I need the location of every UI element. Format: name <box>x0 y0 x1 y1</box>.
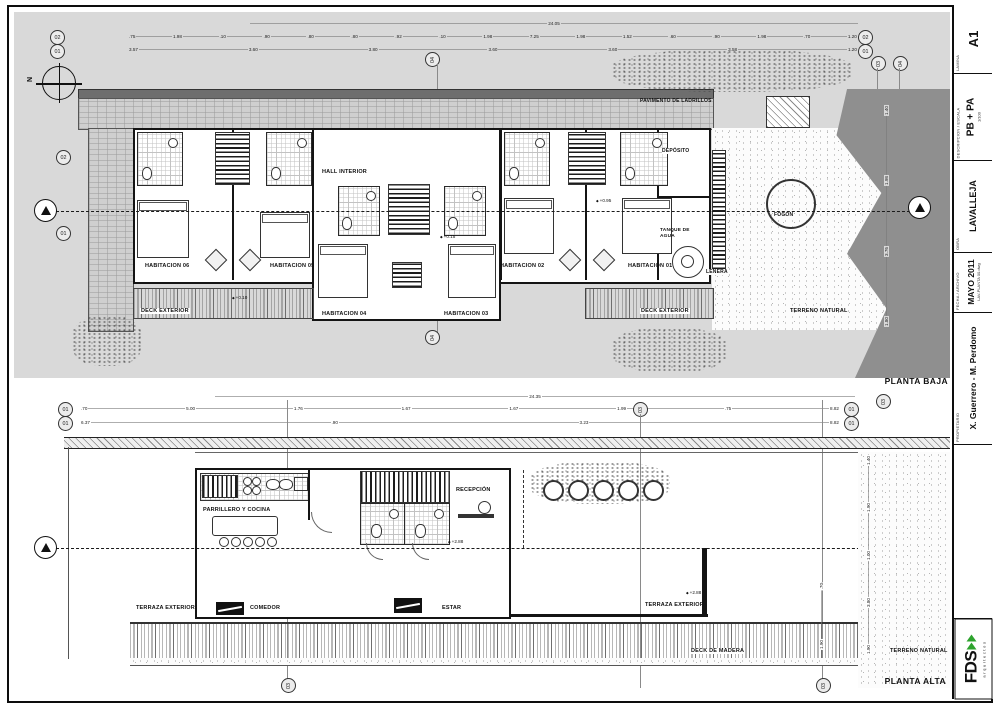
fogon-circle <box>766 179 816 229</box>
sink-icon <box>168 138 178 148</box>
dimension-value: 8.82 <box>829 406 840 411</box>
toilet-icon <box>342 217 352 230</box>
column-circle <box>643 480 664 501</box>
toilet-icon <box>371 524 382 538</box>
escala-value: 1/100 <box>976 112 981 122</box>
propietario-header: PROPIETARIO <box>955 413 960 442</box>
comedor-label: COMEDOR <box>250 605 280 611</box>
dimension-value: 3.60 <box>248 47 259 52</box>
fireplace <box>394 598 422 613</box>
grid-bubble-01-left: 01 <box>50 44 65 59</box>
section-line-lower <box>56 548 930 549</box>
dimension-value: .75 <box>724 406 732 411</box>
dim-row-lower-1: .705.001.761.671.671.99.758.82 <box>80 404 840 412</box>
wardrobe <box>568 132 606 185</box>
burner-icon <box>243 477 252 486</box>
dimension-value: 5.00 <box>185 406 196 411</box>
estar-label: ESTAR <box>442 605 461 611</box>
brick-path-left <box>88 128 134 332</box>
obra-header: OBRA <box>955 238 960 250</box>
grid-bubble-02-leftmid: 02 <box>56 150 71 165</box>
dimension-value: 6.37 <box>80 420 91 425</box>
gravel-band <box>130 658 858 666</box>
dimension-value: .90 <box>262 34 270 39</box>
section-marker <box>34 536 57 559</box>
sink-icon <box>266 479 280 490</box>
north-label: N <box>27 77 34 82</box>
level-marker: +0.15 <box>440 234 455 239</box>
grid-bubble-03-bottom: 03 <box>281 678 296 693</box>
bathroom-pod <box>504 132 550 186</box>
level-marker: +0.10 <box>232 295 247 300</box>
lamina-value: A1 <box>966 31 981 48</box>
sink-icon <box>279 479 293 490</box>
water-tank-inner <box>681 255 694 268</box>
deck-left-label: DECK EXTERIOR <box>140 308 190 314</box>
stool-icon <box>219 537 229 547</box>
dimension-value: 1.80 <box>884 316 889 327</box>
burner-icon <box>252 477 261 486</box>
fds-logo: FDS <box>961 634 981 683</box>
deck-right-label: DECK EXTERIOR <box>640 308 690 314</box>
bathroom-pod <box>620 132 668 186</box>
grid-bubble-01-right2: 01 <box>844 416 859 431</box>
grid-bubble-03-rot: 03 <box>876 394 891 409</box>
bed <box>260 212 310 258</box>
water-tank <box>672 246 704 278</box>
logo-triangle-icon <box>966 642 976 649</box>
dimension-value: .80 <box>350 34 358 39</box>
grid-bubble-01-leftmid: 01 <box>56 226 71 241</box>
bathroom-pod <box>404 503 450 545</box>
dimension-value: 3.76 <box>884 246 889 257</box>
north-arrow-icon <box>42 66 76 100</box>
vegetation <box>612 328 727 372</box>
title-block-propietario: PROPIETARIO X. Guerrero - M. Perdomo <box>954 312 992 445</box>
title-block-descripcion: DESCRIPCION / ESCALA PB + PA 1/100 <box>954 73 992 161</box>
terrace-dashed-edge <box>523 470 525 548</box>
site-boundary <box>68 447 69 659</box>
wood-deck <box>130 622 858 661</box>
dimension-total: 24.35 <box>528 394 542 399</box>
room-label-h05: HABITACION 05 <box>270 263 314 269</box>
dimension-value: 3.80 <box>866 597 871 608</box>
bed <box>622 198 672 254</box>
dimension-value: 3.23 <box>579 420 590 425</box>
sink-icon <box>366 191 376 201</box>
toilet-icon <box>415 524 426 538</box>
drawing-sheet: 24.05 .751.98.10.90.80.80.92.101.987.251… <box>0 0 1000 707</box>
toilet-icon <box>509 167 519 180</box>
dim-total-upper: 24.05 <box>250 19 858 27</box>
bed <box>137 200 189 258</box>
title-block-logo: FDS arquitectos <box>954 618 992 699</box>
vdim-col-mid: .701.90 <box>816 582 827 650</box>
terraza-left-label: TERRAZA EXTERIOR <box>136 605 195 611</box>
dimension-value: 1.76 <box>293 406 304 411</box>
sink-icon <box>535 138 545 148</box>
toilet-icon <box>142 167 152 180</box>
dimension-value: .10 <box>219 34 227 39</box>
logo-triangle-icon <box>966 634 976 641</box>
stool-icon <box>243 537 253 547</box>
section-line-upper <box>56 211 930 212</box>
parrillero-label: PARRILLERO Y COCINA <box>203 507 270 513</box>
grid-bubble-04-righttop: 04 <box>893 56 908 71</box>
sink-icon <box>652 138 662 148</box>
pavimento-label: PAVIMENTO DE LADRILLOS <box>640 98 712 104</box>
room-label-h04: HABITACION 04 <box>322 311 366 317</box>
descripcion-value: PB + PA <box>965 97 976 135</box>
stair-flight <box>392 262 422 288</box>
stair-run <box>360 471 450 503</box>
level-marker: +0.95 <box>596 198 611 203</box>
title-block-fecha: FECHA / ARCHIVO MAYO 2011 LAV-PLANTA 00.… <box>954 252 992 313</box>
title-block-lamina: LAMINA A1 <box>954 5 992 74</box>
stool-icon <box>255 537 265 547</box>
planta-alta-title: PLANTA ALTA <box>828 676 946 686</box>
section-marker <box>34 199 57 222</box>
grid-bubble-04-bottom: 04 <box>425 330 440 345</box>
dimension-value: .80 <box>306 34 314 39</box>
stool-icon <box>231 537 241 547</box>
stool-icon <box>267 537 277 547</box>
dimension-value: 1.52 <box>622 34 633 39</box>
level-marker: +2.88 <box>686 590 701 595</box>
island-table <box>212 516 278 536</box>
terreno-natural-upper-label: TERRENO NATURAL <box>790 308 848 314</box>
room-label-h01: HABITACION 01 <box>628 263 672 269</box>
chair-icon <box>478 501 491 514</box>
terraza-right-label: TERRAZA EXTERIOR <box>645 602 704 608</box>
deck-madera-label: DECK DE MADERA <box>690 648 745 654</box>
vdim-col-upper: 1.401.983.761.80 <box>880 105 892 327</box>
exterior-stair <box>766 96 810 128</box>
grid-bubble-04-top: 04 <box>425 52 440 67</box>
dimension-value: 1.98 <box>756 34 767 39</box>
column-circle <box>618 480 639 501</box>
dimension-value: 1.20 <box>847 34 858 39</box>
archivo-value: LAV-PLANTA 00.dwg <box>976 263 981 300</box>
hall-label: HALL INTERIOR <box>322 169 367 175</box>
dim-row-lower-2: 6.37.903.238.82 <box>80 418 840 426</box>
sink-icon <box>389 509 399 519</box>
dimension-value: 1.40 <box>884 105 889 116</box>
dimension-value: 1.90 <box>819 639 824 650</box>
dimension-value: 1.00 <box>866 550 871 561</box>
dimension-value: .75 <box>128 34 136 39</box>
room-label-h03: HABITACION 03 <box>444 311 488 317</box>
dimension-value: 1.99 <box>616 406 627 411</box>
interior-stair <box>388 184 430 235</box>
lenera-label: LEÑERA <box>706 269 728 275</box>
section-marker <box>908 196 931 219</box>
recepcion-label: RECEPCIÓN <box>456 487 491 493</box>
stone-wall-strip <box>64 437 950 449</box>
roof-line <box>195 452 860 453</box>
room-label-h02: HABITACION 02 <box>500 263 544 269</box>
grid-bubble-01-left: 01 <box>58 402 73 417</box>
grill <box>202 475 238 498</box>
grid-bubble-01-right: 01 <box>844 402 859 417</box>
toilet-icon <box>271 167 281 180</box>
dimension-value: 3.57 <box>128 47 139 52</box>
dimension-value: .92 <box>394 34 402 39</box>
wardrobe <box>215 132 250 185</box>
dim-total-lower: 24.35 <box>215 392 855 400</box>
toilet-icon <box>625 167 635 180</box>
dimension-value: .90 <box>331 420 339 425</box>
dimension-value: 1.67 <box>401 406 412 411</box>
vdim-col-lower: 1.401.901.003.801.90 <box>862 455 874 655</box>
lenera-strip <box>712 150 726 270</box>
dimension-value: .60 <box>668 34 676 39</box>
dimension-value: 8.82 <box>829 420 840 425</box>
terreno-natural-lower-label: TERRENO NATURAL <box>890 648 948 654</box>
grid-bubble-03-righttop: 03 <box>871 56 886 71</box>
brick-pavement <box>78 98 714 130</box>
dimension-value: 3.60 <box>487 47 498 52</box>
title-block-blank <box>954 444 992 619</box>
fireplace <box>216 602 244 615</box>
tanque-label: TANQUE DE AGUA <box>660 228 690 240</box>
dim-row-upper-02: .751.98.10.90.80.80.92.101.987.251.981.5… <box>128 32 858 40</box>
dimension-total: 24.05 <box>547 21 561 26</box>
dimension-value: .90 <box>712 34 720 39</box>
fds-logo-sub: arquitectos <box>981 640 986 677</box>
fecha-value: MAYO 2011 <box>966 259 976 305</box>
dimension-value: 3.80 <box>368 47 379 52</box>
obra-value: LAVALLEJA <box>968 180 978 232</box>
fecha-header: FECHA / ARCHIVO <box>955 272 960 310</box>
dimension-value: 1.90 <box>866 644 871 655</box>
sink-icon <box>472 191 482 201</box>
bathroom-pod <box>137 132 183 186</box>
grid-bubble-02-left: 02 <box>50 30 65 45</box>
dimension-value: 1.90 <box>866 502 871 513</box>
dimension-value: 3.60 <box>607 47 618 52</box>
column-circle <box>568 480 589 501</box>
bed <box>504 198 554 254</box>
dimension-value: 1.98 <box>884 175 889 186</box>
dimension-value: 7.25 <box>529 34 540 39</box>
burner-icon <box>252 486 261 495</box>
dimension-value: 1.98 <box>172 34 183 39</box>
title-block-obra: OBRA LAVALLEJA <box>954 160 992 253</box>
dimension-value: .70 <box>819 582 824 590</box>
terrace-edge-wall <box>510 614 708 617</box>
reception-desk <box>458 514 494 518</box>
bed <box>318 244 368 298</box>
bathroom-pod <box>360 503 405 545</box>
column-circle <box>543 480 564 501</box>
propietario-value: X. Guerrero - M. Perdomo <box>968 327 978 430</box>
column-circle <box>593 480 614 501</box>
partition <box>500 130 502 280</box>
fds-logo-text: FDS <box>961 650 981 683</box>
bed <box>448 244 496 298</box>
dimension-value: .10 <box>438 34 446 39</box>
title-block: LAMINA A1 DESCRIPCION / ESCALA PB + PA 1… <box>952 5 994 699</box>
burner-icon <box>243 486 252 495</box>
level-marker: +2.88 <box>448 539 463 544</box>
dimension-value: 1.40 <box>866 455 871 466</box>
bathroom-pod <box>266 132 312 186</box>
vegetation <box>72 316 142 366</box>
descripcion-header: DESCRIPCION / ESCALA <box>955 107 960 158</box>
grid-bubble-01-left2: 01 <box>58 416 73 431</box>
deposito-label: DEPÓSITO <box>662 148 689 154</box>
sink-icon <box>434 509 444 519</box>
dimension-value: .70 <box>803 34 811 39</box>
dimension-value: 1.98 <box>575 34 586 39</box>
fridge <box>294 477 308 491</box>
grid-bubble-02-right: 02 <box>858 30 873 45</box>
deck-left <box>133 288 314 319</box>
dimension-value: 1.98 <box>482 34 493 39</box>
dimension-value: 1.67 <box>508 406 519 411</box>
fogon-label: FOGÓN <box>774 212 793 218</box>
vegetation <box>612 50 852 92</box>
room-label-h06: HABITACION 06 <box>145 263 189 269</box>
planta-baja-title: PLANTA BAJA <box>828 376 948 386</box>
deck-right <box>585 288 714 319</box>
toilet-icon <box>448 217 458 230</box>
dimension-value: 1.20 <box>847 47 858 52</box>
grid-bubble-01-right: 01 <box>858 44 873 59</box>
dimension-value: .70 <box>80 406 88 411</box>
sink-icon <box>297 138 307 148</box>
lamina-header: LAMINA <box>955 55 960 71</box>
